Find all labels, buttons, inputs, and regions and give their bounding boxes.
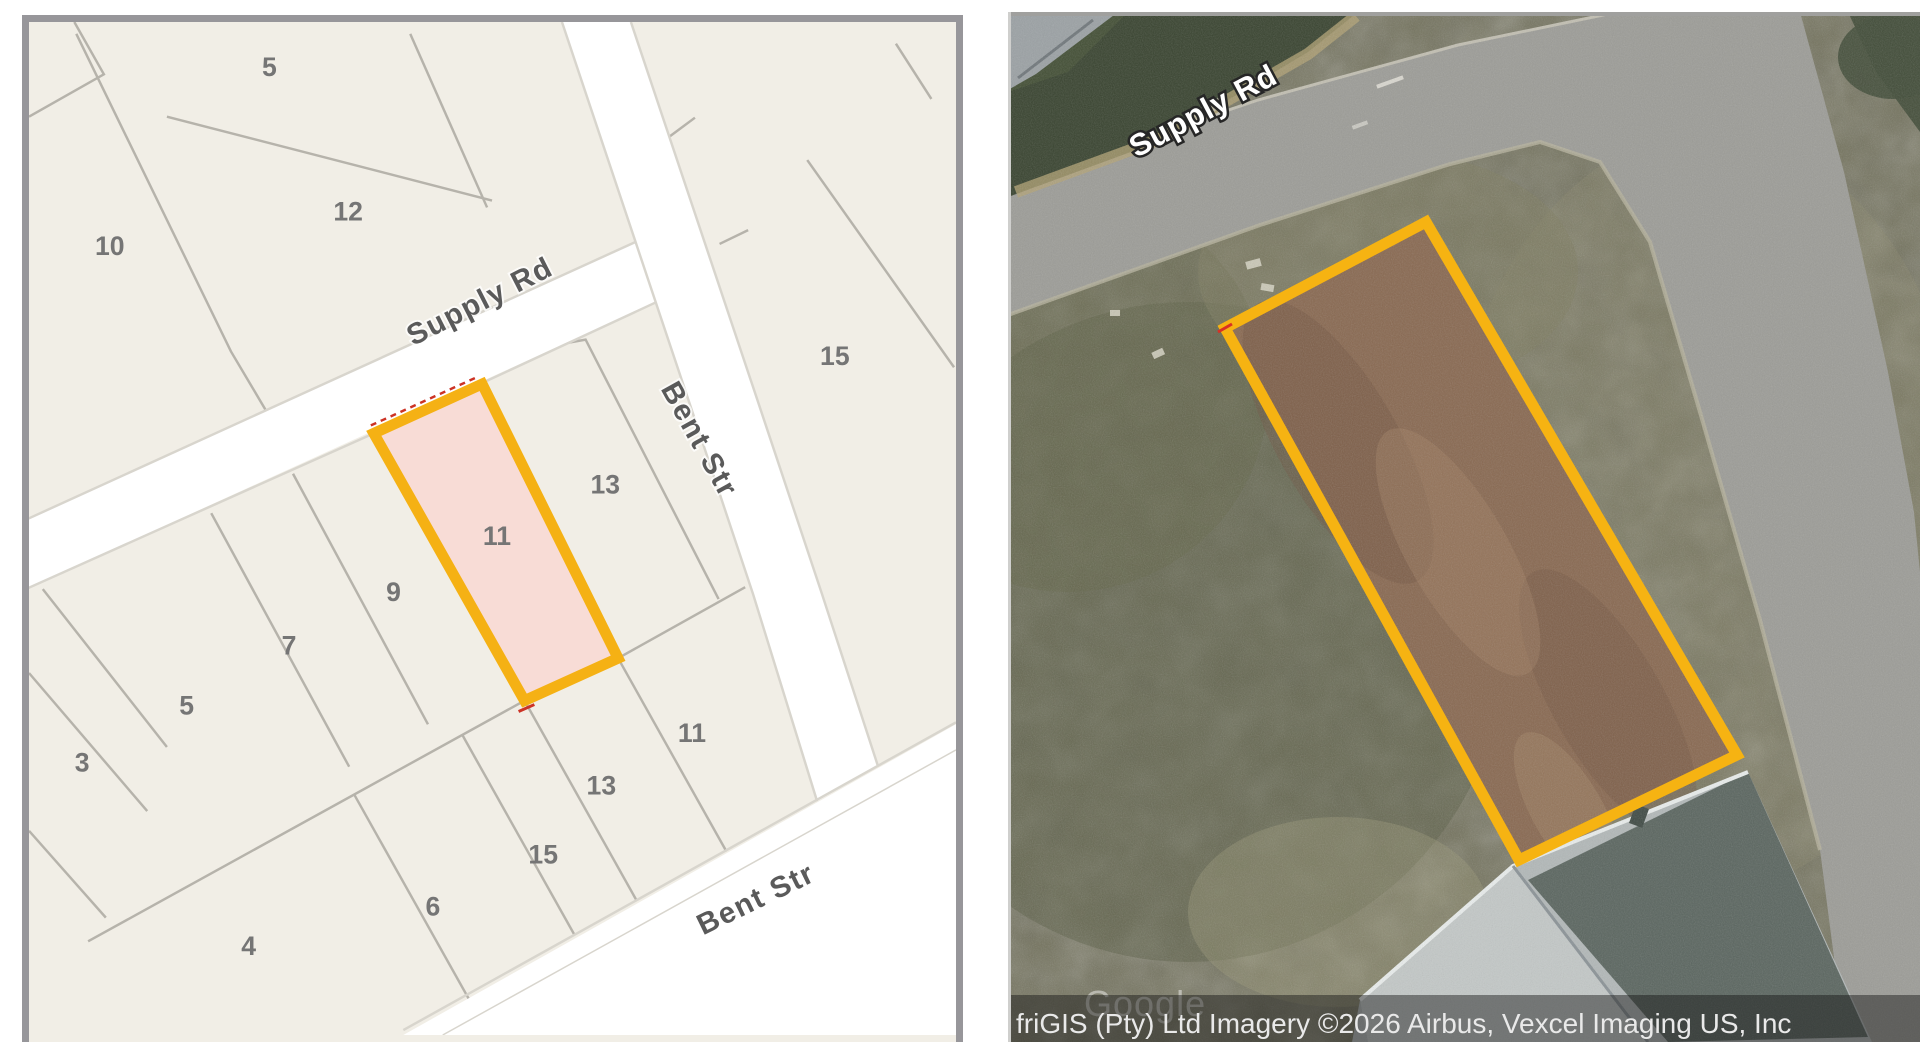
parcel-label: 9 [386,577,401,607]
parcel-label: 13 [591,469,621,499]
parcel-label: 10 [95,231,125,261]
parcel-label: 11 [483,521,511,551]
parcel-label: 6 [425,892,440,922]
parcel-label: 7 [282,630,297,660]
parcel-label: 15 [528,839,558,869]
satellite-image: Supply Rd Google friGIS (Pty) Ltd Imager… [1008,12,1920,1042]
parcel-label: 3 [75,748,90,778]
parcel-label: 11 [678,718,706,748]
parcel-label: 12 [333,196,363,226]
attribution-bar: friGIS (Pty) Ltd Imagery ©2026 Airbus, V… [1008,995,1920,1042]
parcel-label: 5 [262,52,277,82]
attribution-text: friGIS (Pty) Ltd Imagery ©2026 Airbus, V… [1016,1008,1791,1039]
cadastral-map: 51210151311975311131564 Supply RdBent St… [29,22,956,1035]
parcel-label: 13 [587,770,617,800]
photo-grain [1008,12,1920,1042]
parcel-label: 4 [241,931,256,961]
parcel-label: 15 [820,341,850,371]
pane-top-border [1008,12,1920,16]
cadastral-map-pane[interactable]: 51210151311975311131564 Supply RdBent St… [22,15,963,1042]
pane-left-border [1008,12,1011,1042]
parcel-label: 5 [179,690,194,720]
satellite-image-pane[interactable]: Supply Rd Google friGIS (Pty) Ltd Imager… [1008,12,1920,1042]
screenshot-canvas: 51210151311975311131564 Supply RdBent St… [0,0,1920,1042]
